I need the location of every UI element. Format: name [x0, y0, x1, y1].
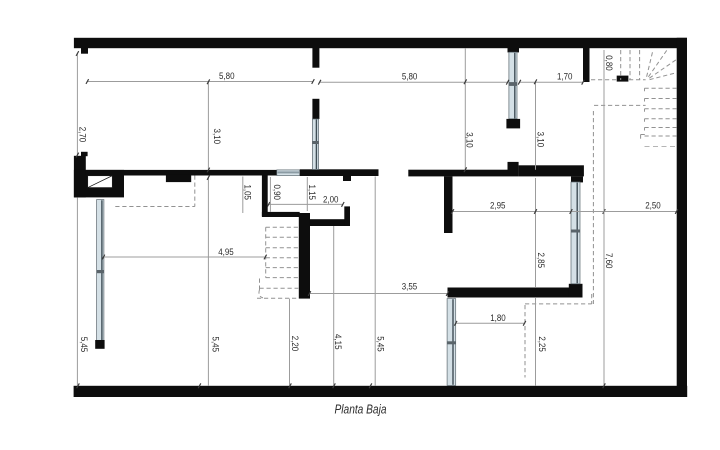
svg-text:5,80: 5,80	[402, 72, 418, 83]
svg-text:Planta Baja: Planta Baja	[335, 402, 387, 417]
svg-text:1,05: 1,05	[241, 184, 252, 200]
svg-text:5,45: 5,45	[209, 337, 220, 353]
svg-text:3,55: 3,55	[402, 282, 418, 293]
svg-text:2,50: 2,50	[645, 201, 661, 212]
svg-text:1,15: 1,15	[306, 184, 317, 200]
svg-text:4,95: 4,95	[218, 247, 234, 258]
svg-text:2,00: 2,00	[323, 194, 339, 205]
svg-text:0,80: 0,80	[603, 55, 614, 71]
svg-text:3,10: 3,10	[211, 129, 222, 145]
svg-text:7,60: 7,60	[603, 253, 614, 269]
svg-text:5,80: 5,80	[219, 71, 235, 82]
svg-text:3,10: 3,10	[464, 132, 475, 148]
svg-text:1,70: 1,70	[557, 72, 573, 83]
svg-text:2,25: 2,25	[536, 336, 547, 352]
svg-text:2,70: 2,70	[77, 127, 88, 143]
svg-text:2,95: 2,95	[490, 201, 506, 212]
svg-text:4,15: 4,15	[332, 334, 343, 350]
svg-text:2,20: 2,20	[289, 336, 300, 352]
svg-text:2,85: 2,85	[535, 253, 546, 269]
svg-text:5,45: 5,45	[78, 337, 89, 353]
svg-text:1,80: 1,80	[490, 313, 506, 324]
svg-text:0,90: 0,90	[271, 184, 282, 200]
svg-text:5,45: 5,45	[374, 336, 385, 352]
svg-text:3,10: 3,10	[534, 132, 545, 148]
